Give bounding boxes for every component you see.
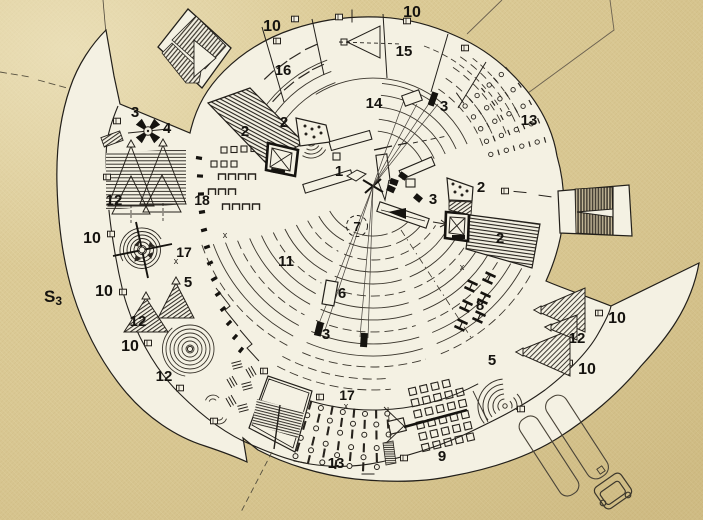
svg-text:7: 7 <box>353 219 360 234</box>
svg-text:8: 8 <box>476 297 484 314</box>
svg-text:13: 13 <box>521 112 538 129</box>
svg-text:5: 5 <box>488 352 496 369</box>
svg-text:12: 12 <box>106 192 123 209</box>
svg-text:2: 2 <box>496 230 504 247</box>
svg-text:x: x <box>223 230 228 240</box>
svg-text:6: 6 <box>338 285 346 302</box>
svg-text:2: 2 <box>241 123 249 140</box>
svg-text:5: 5 <box>184 274 192 291</box>
svg-text:10: 10 <box>83 230 101 247</box>
svg-text:2: 2 <box>477 179 485 196</box>
svg-text:18: 18 <box>194 192 210 208</box>
svg-text:10: 10 <box>263 18 281 35</box>
svg-text:11: 11 <box>278 253 294 270</box>
svg-text:16: 16 <box>275 62 292 79</box>
svg-text:12: 12 <box>569 330 586 347</box>
svg-text:x: x <box>344 401 349 411</box>
svg-text:x: x <box>460 262 465 272</box>
svg-text:10: 10 <box>608 310 626 327</box>
svg-text:1: 1 <box>335 163 343 180</box>
svg-text:x: x <box>174 256 179 266</box>
svg-text:15: 15 <box>396 43 413 60</box>
svg-text:9: 9 <box>438 448 446 465</box>
svg-text:3: 3 <box>322 326 330 343</box>
svg-text:10: 10 <box>578 361 596 378</box>
svg-text:10: 10 <box>95 283 113 300</box>
svg-text:17: 17 <box>176 244 192 260</box>
svg-text:12: 12 <box>156 368 173 385</box>
svg-text:4: 4 <box>163 120 172 137</box>
svg-text:2: 2 <box>280 114 288 131</box>
svg-text:12: 12 <box>130 313 147 330</box>
svg-text:10: 10 <box>121 338 139 355</box>
svg-text:3: 3 <box>440 98 448 115</box>
svg-text:13: 13 <box>328 455 345 472</box>
svg-text:10: 10 <box>403 4 421 21</box>
svg-text:14: 14 <box>366 95 383 112</box>
svg-text:3: 3 <box>429 191 437 208</box>
svg-text:3: 3 <box>131 104 139 121</box>
